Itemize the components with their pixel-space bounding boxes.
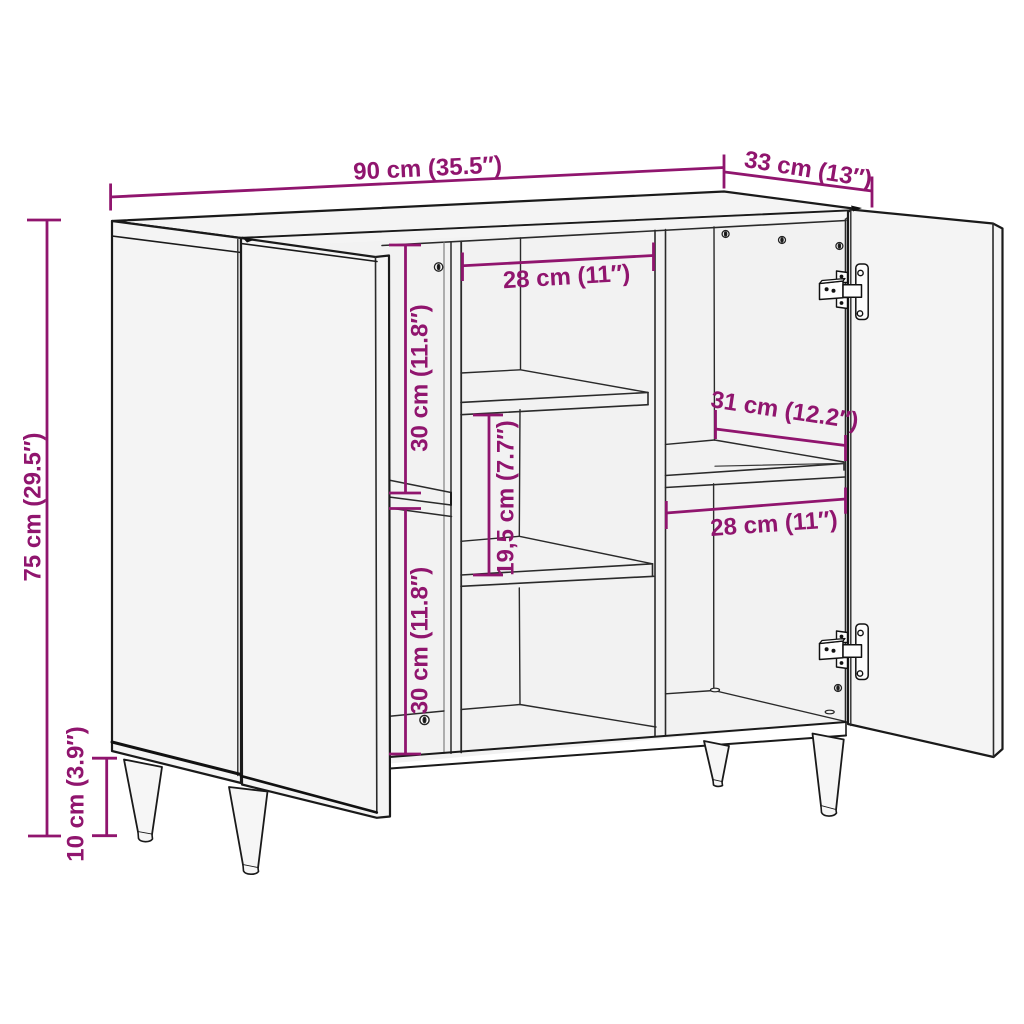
svg-text:75 cm (29.5″): 75 cm (29.5″) — [20, 433, 47, 582]
svg-text:10 cm (3.9″): 10 cm (3.9″) — [63, 726, 90, 862]
svg-text:30 cm (11.8″): 30 cm (11.8″) — [407, 567, 434, 715]
svg-text:19,5 cm (7.7″): 19,5 cm (7.7″) — [493, 420, 520, 576]
svg-text:30 cm (11.8″): 30 cm (11.8″) — [407, 304, 434, 452]
